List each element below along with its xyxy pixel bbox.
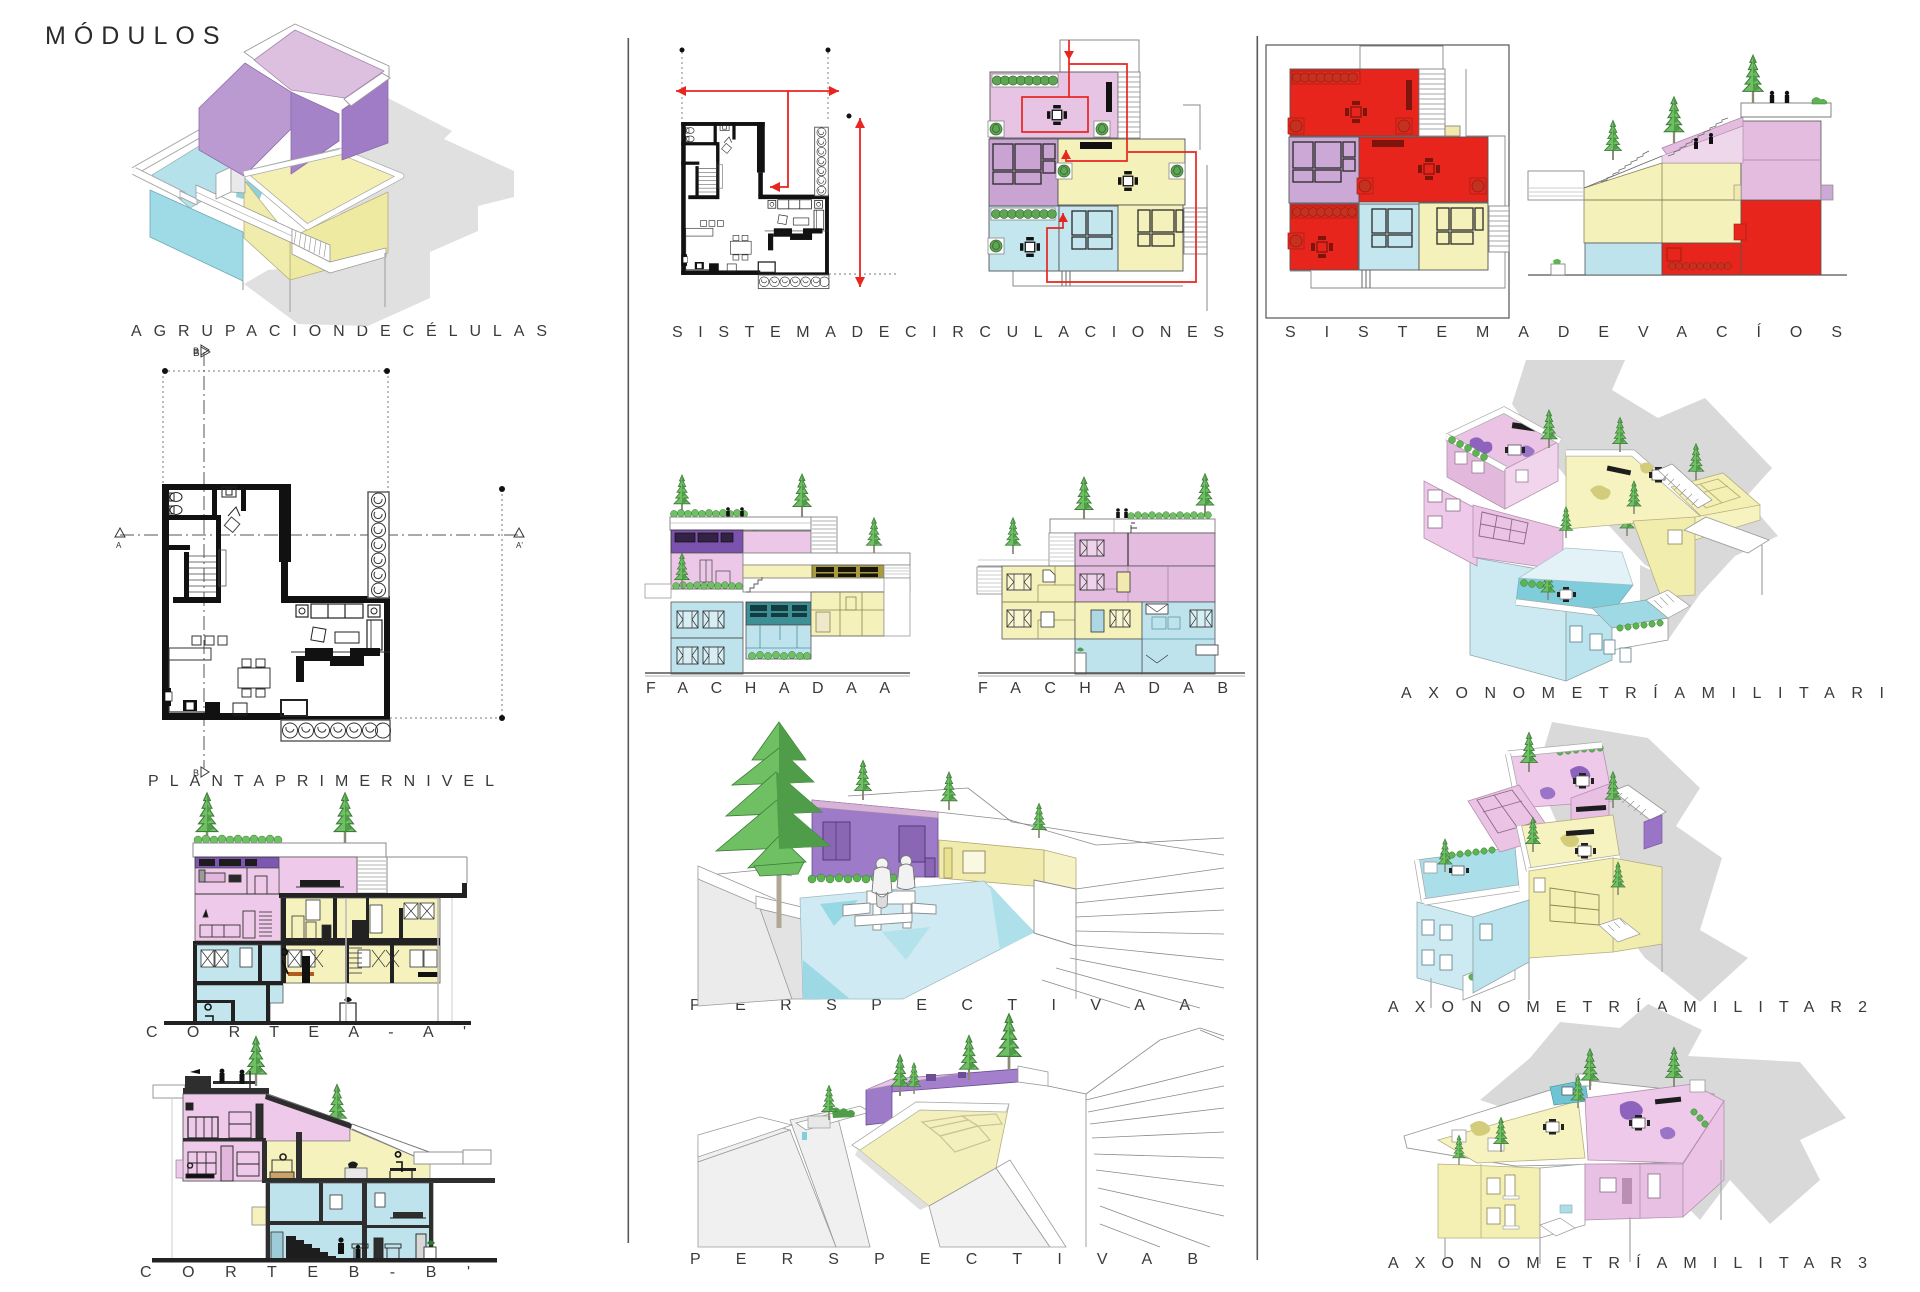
svg-text:MÓDULOS: MÓDULOS [45,21,231,50]
svg-text:CORTEA-A': CORTEA-A' [146,1024,486,1041]
svg-text:CORTEB-B': CORTEB-B' [140,1264,490,1281]
svg-text:B: B [193,768,199,778]
svg-text:PLANTAPRIMERNIVEL: PLANTAPRIMERNIVEL [148,773,505,790]
svg-text:A: A [116,541,122,550]
svg-text:B: B [193,346,199,356]
svg-text:SISTEMADEVACÍOS: SISTEMADEVACÍOS [1285,322,1860,341]
svg-text:A': A' [516,541,523,550]
svg-text:SISTEMADECIRCULACIONES: SISTEMADECIRCULACIONES [672,324,1238,341]
